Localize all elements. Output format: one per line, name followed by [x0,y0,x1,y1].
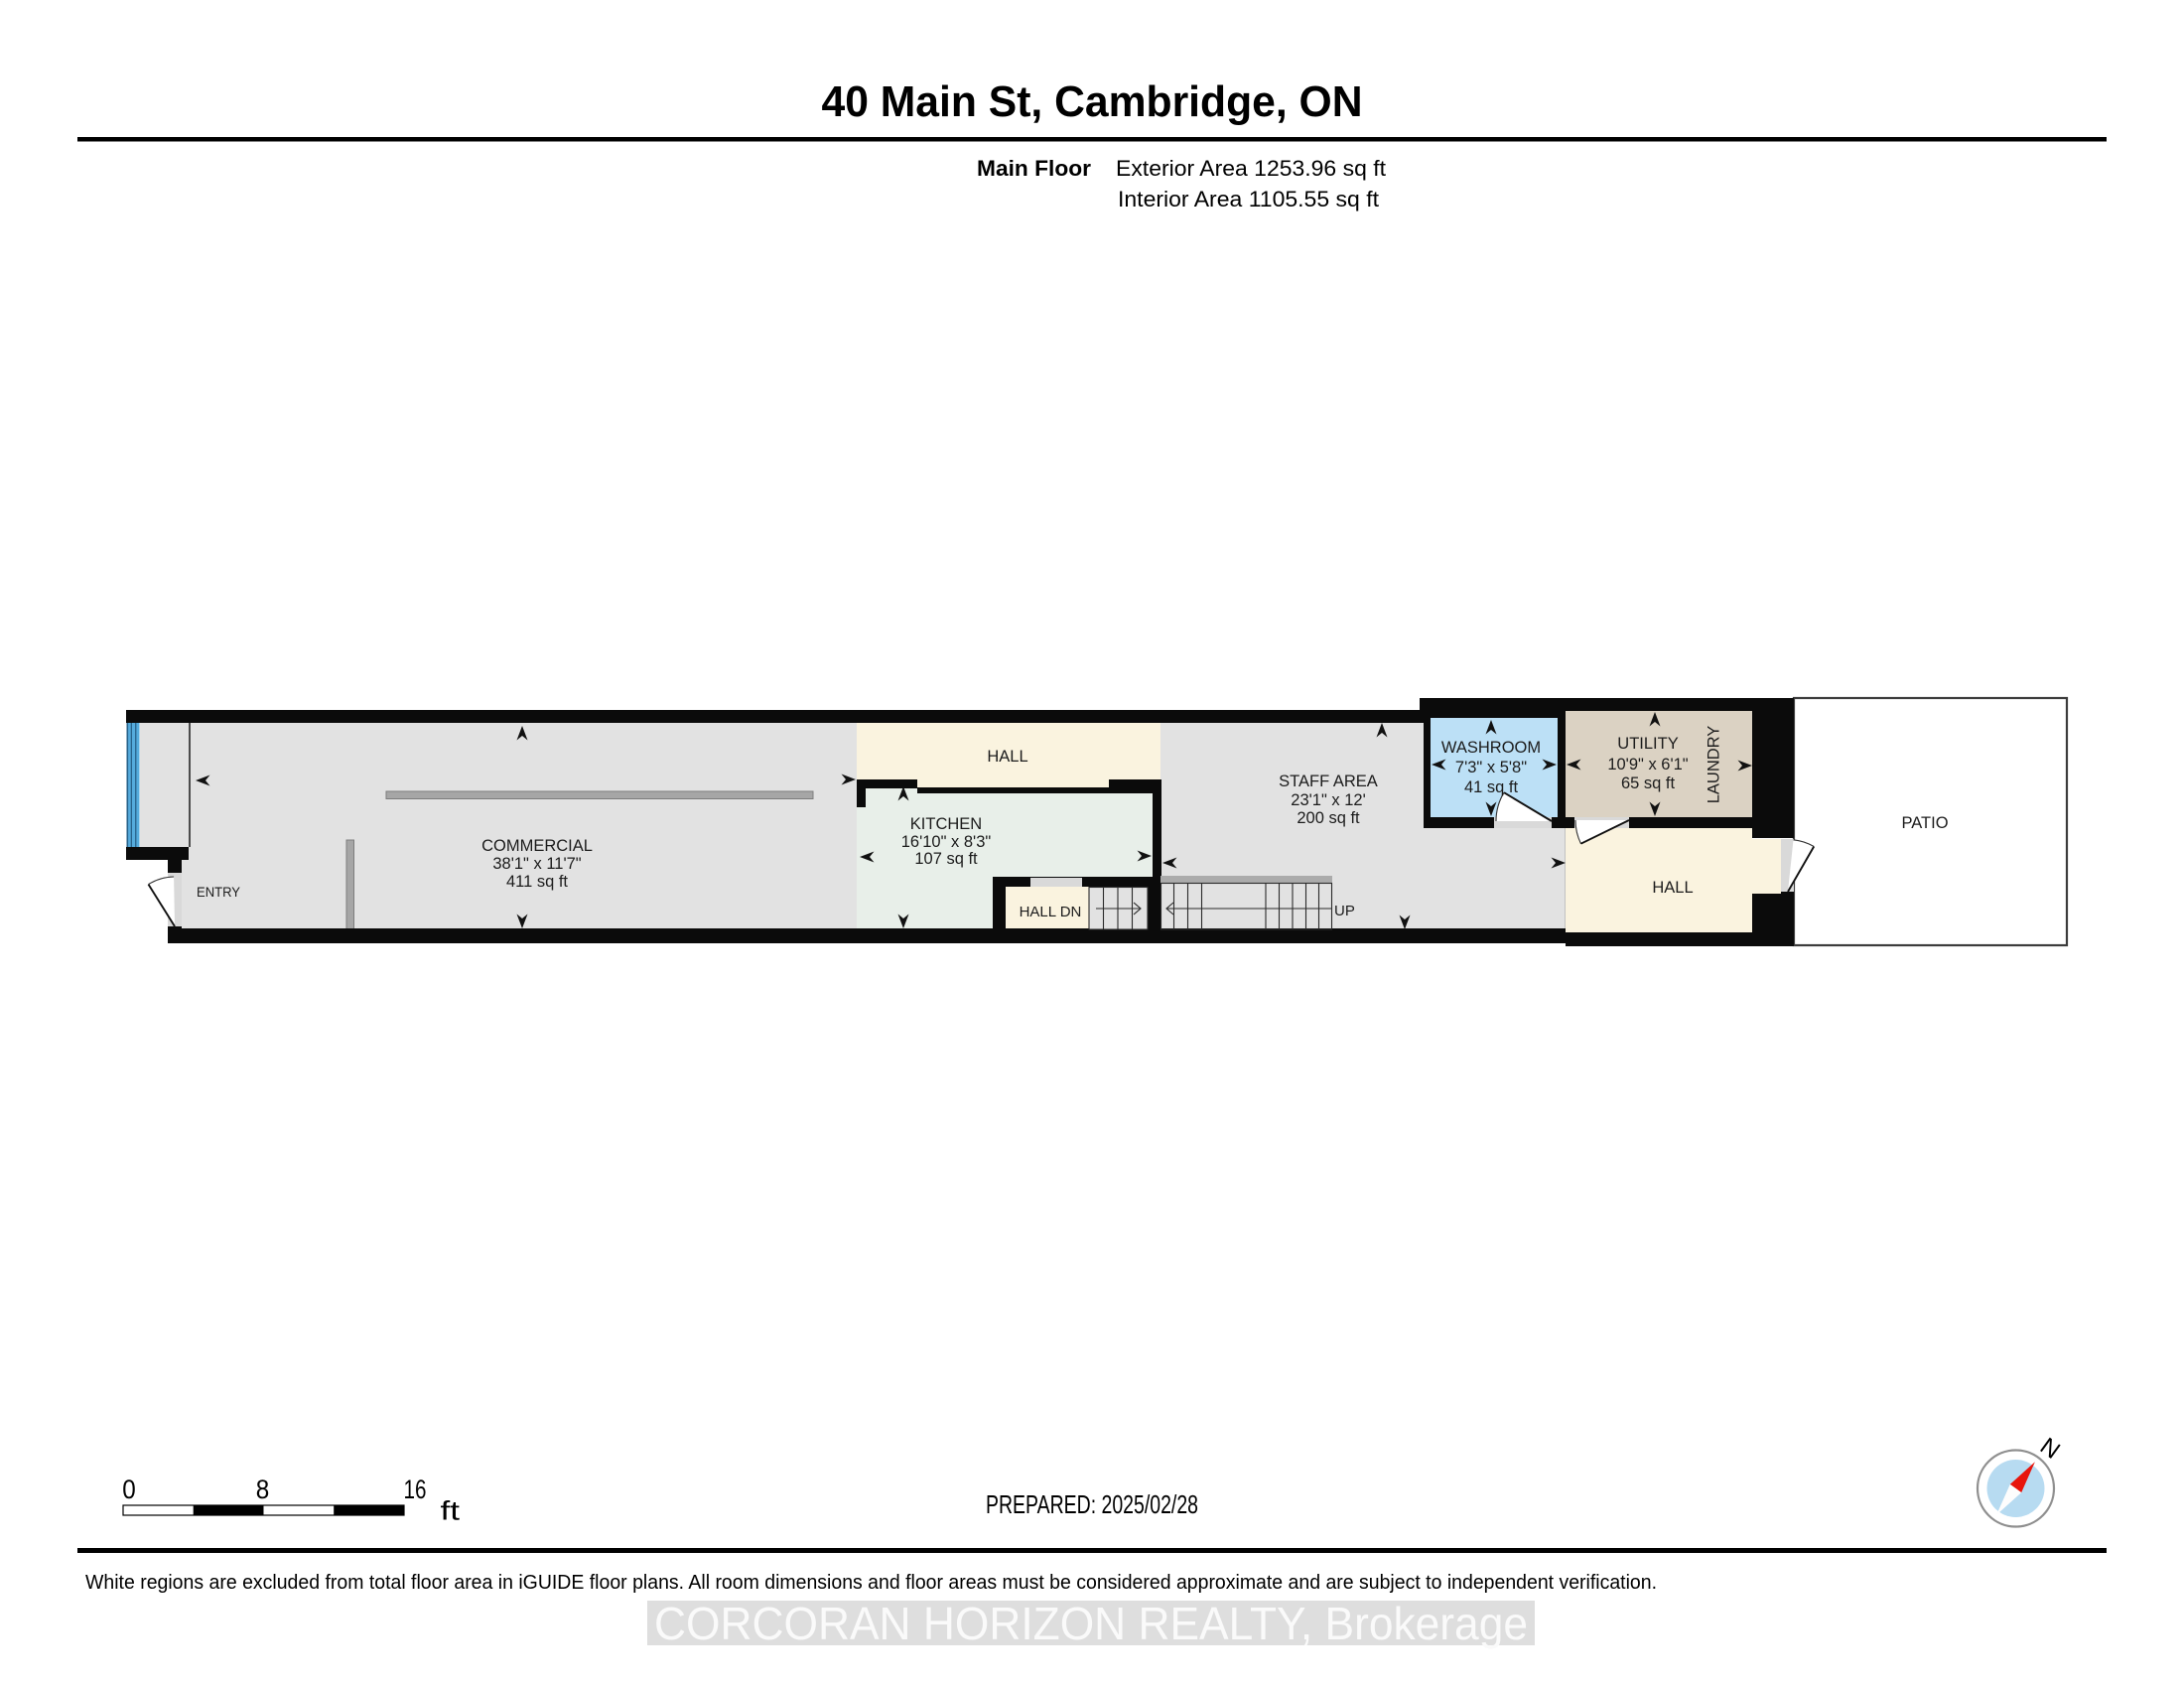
svg-text:CORCORAN HORIZON REALTY, Broke: CORCORAN HORIZON REALTY, Brokerage [654,1598,1528,1649]
svg-text:HALL DN: HALL DN [1020,904,1082,920]
svg-text:107 sq ft: 107 sq ft [914,850,978,868]
svg-text:KITCHEN: KITCHEN [910,815,982,833]
svg-text:UP: UP [1334,903,1355,919]
svg-text:7'3" x 5'8": 7'3" x 5'8" [1455,759,1527,776]
svg-text:COMMERCIAL: COMMERCIAL [481,837,593,855]
svg-text:PREPARED: 2025/02/28: PREPARED: 2025/02/28 [986,1489,1198,1519]
svg-text:41 sq ft: 41 sq ft [1464,778,1519,796]
svg-text:8: 8 [256,1475,270,1504]
svg-text:HALL: HALL [1652,879,1693,897]
svg-text:Interior Area 1105.55 sq ft: Interior Area 1105.55 sq ft [1118,187,1379,211]
svg-text:PATIO: PATIO [1901,814,1948,832]
svg-text:Main Floor: Main Floor [977,156,1091,181]
svg-text:411 sq ft: 411 sq ft [506,873,568,891]
svg-text:0: 0 [122,1475,136,1504]
svg-text:65 sq ft: 65 sq ft [1621,774,1676,792]
svg-text:ft: ft [441,1496,461,1526]
svg-text:UTILITY: UTILITY [1617,735,1678,753]
svg-text:ENTRY: ENTRY [197,884,241,900]
svg-text:Exterior Area 1253.96 sq ft: Exterior Area 1253.96 sq ft [1116,156,1386,181]
svg-text:HALL: HALL [987,748,1027,766]
svg-text:200 sq ft: 200 sq ft [1297,809,1360,827]
svg-text:40 Main St, Cambridge, ON: 40 Main St, Cambridge, ON [822,78,1363,126]
svg-text:23'1" x 12': 23'1" x 12' [1291,791,1365,809]
svg-text:16'10" x 8'3": 16'10" x 8'3" [901,833,992,851]
svg-text:WASHROOM: WASHROOM [1441,739,1541,757]
svg-text:10'9" x 6'1": 10'9" x 6'1" [1607,756,1688,774]
svg-text:LAUNDRY: LAUNDRY [1706,726,1723,804]
svg-text:White regions are excluded fro: White regions are excluded from total fl… [85,1572,1657,1594]
svg-text:38'1" x 11'7": 38'1" x 11'7" [492,855,581,873]
svg-text:STAFF AREA: STAFF AREA [1279,773,1378,790]
svg-text:16: 16 [404,1475,427,1504]
